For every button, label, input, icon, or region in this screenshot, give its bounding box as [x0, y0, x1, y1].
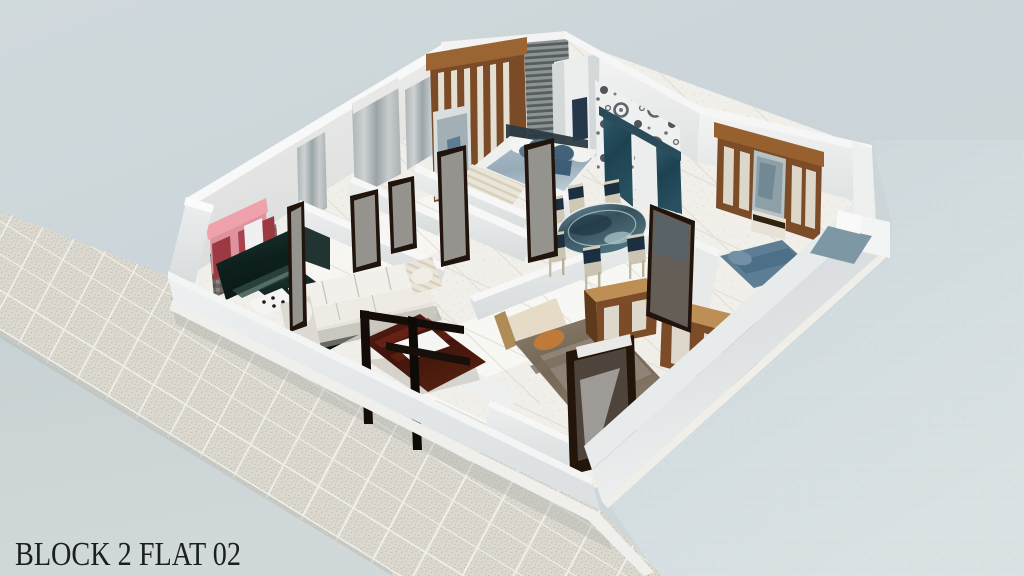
- svg-text:BLOCK 2 FLAT 02: BLOCK 2 FLAT 02: [15, 536, 241, 573]
